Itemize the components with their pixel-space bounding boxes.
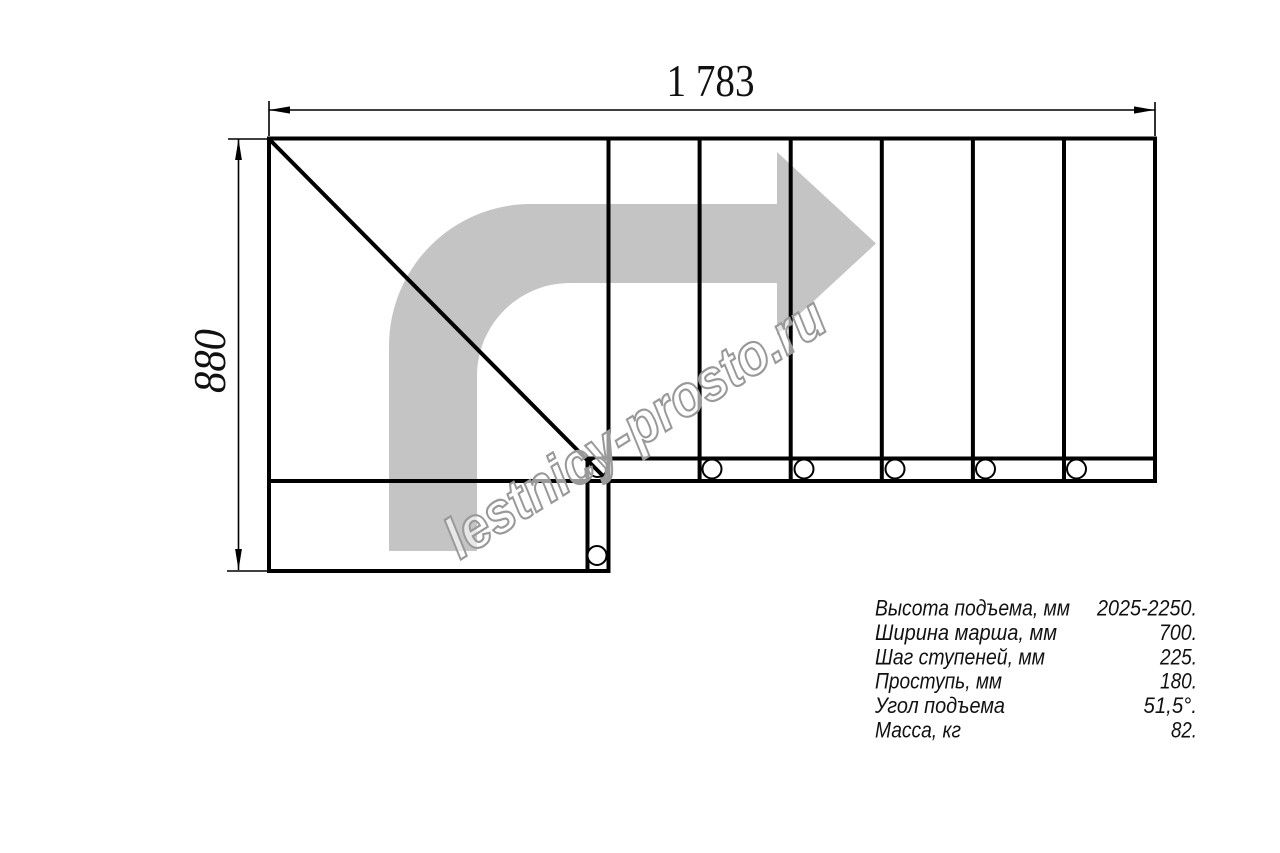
svg-text:180.: 180. [1160,669,1197,694]
svg-text:2025-2250.: 2025-2250. [1096,596,1197,621]
svg-text:Ширина марша, мм: Ширина марша, мм [875,620,1057,645]
svg-text:51,5°.: 51,5°. [1144,693,1198,718]
svg-text:Шаг ступеней, мм: Шаг ступеней, мм [875,644,1045,669]
svg-text:225.: 225. [1159,644,1197,669]
svg-text:Проступь, мм: Проступь, мм [875,669,1002,694]
svg-text:880: 880 [184,329,235,393]
svg-text:82.: 82. [1171,718,1197,743]
svg-text:700.: 700. [1159,620,1197,645]
svg-text:Масса, кг: Масса, кг [875,718,961,743]
svg-text:lestnicy-prosto.ru: lestnicy-prosto.ru [432,284,837,571]
svg-text:Угол подъема: Угол подъема [874,693,1005,718]
svg-text:Высота подъема, мм: Высота подъема, мм [875,596,1070,621]
svg-text:1 783: 1 783 [667,55,755,106]
